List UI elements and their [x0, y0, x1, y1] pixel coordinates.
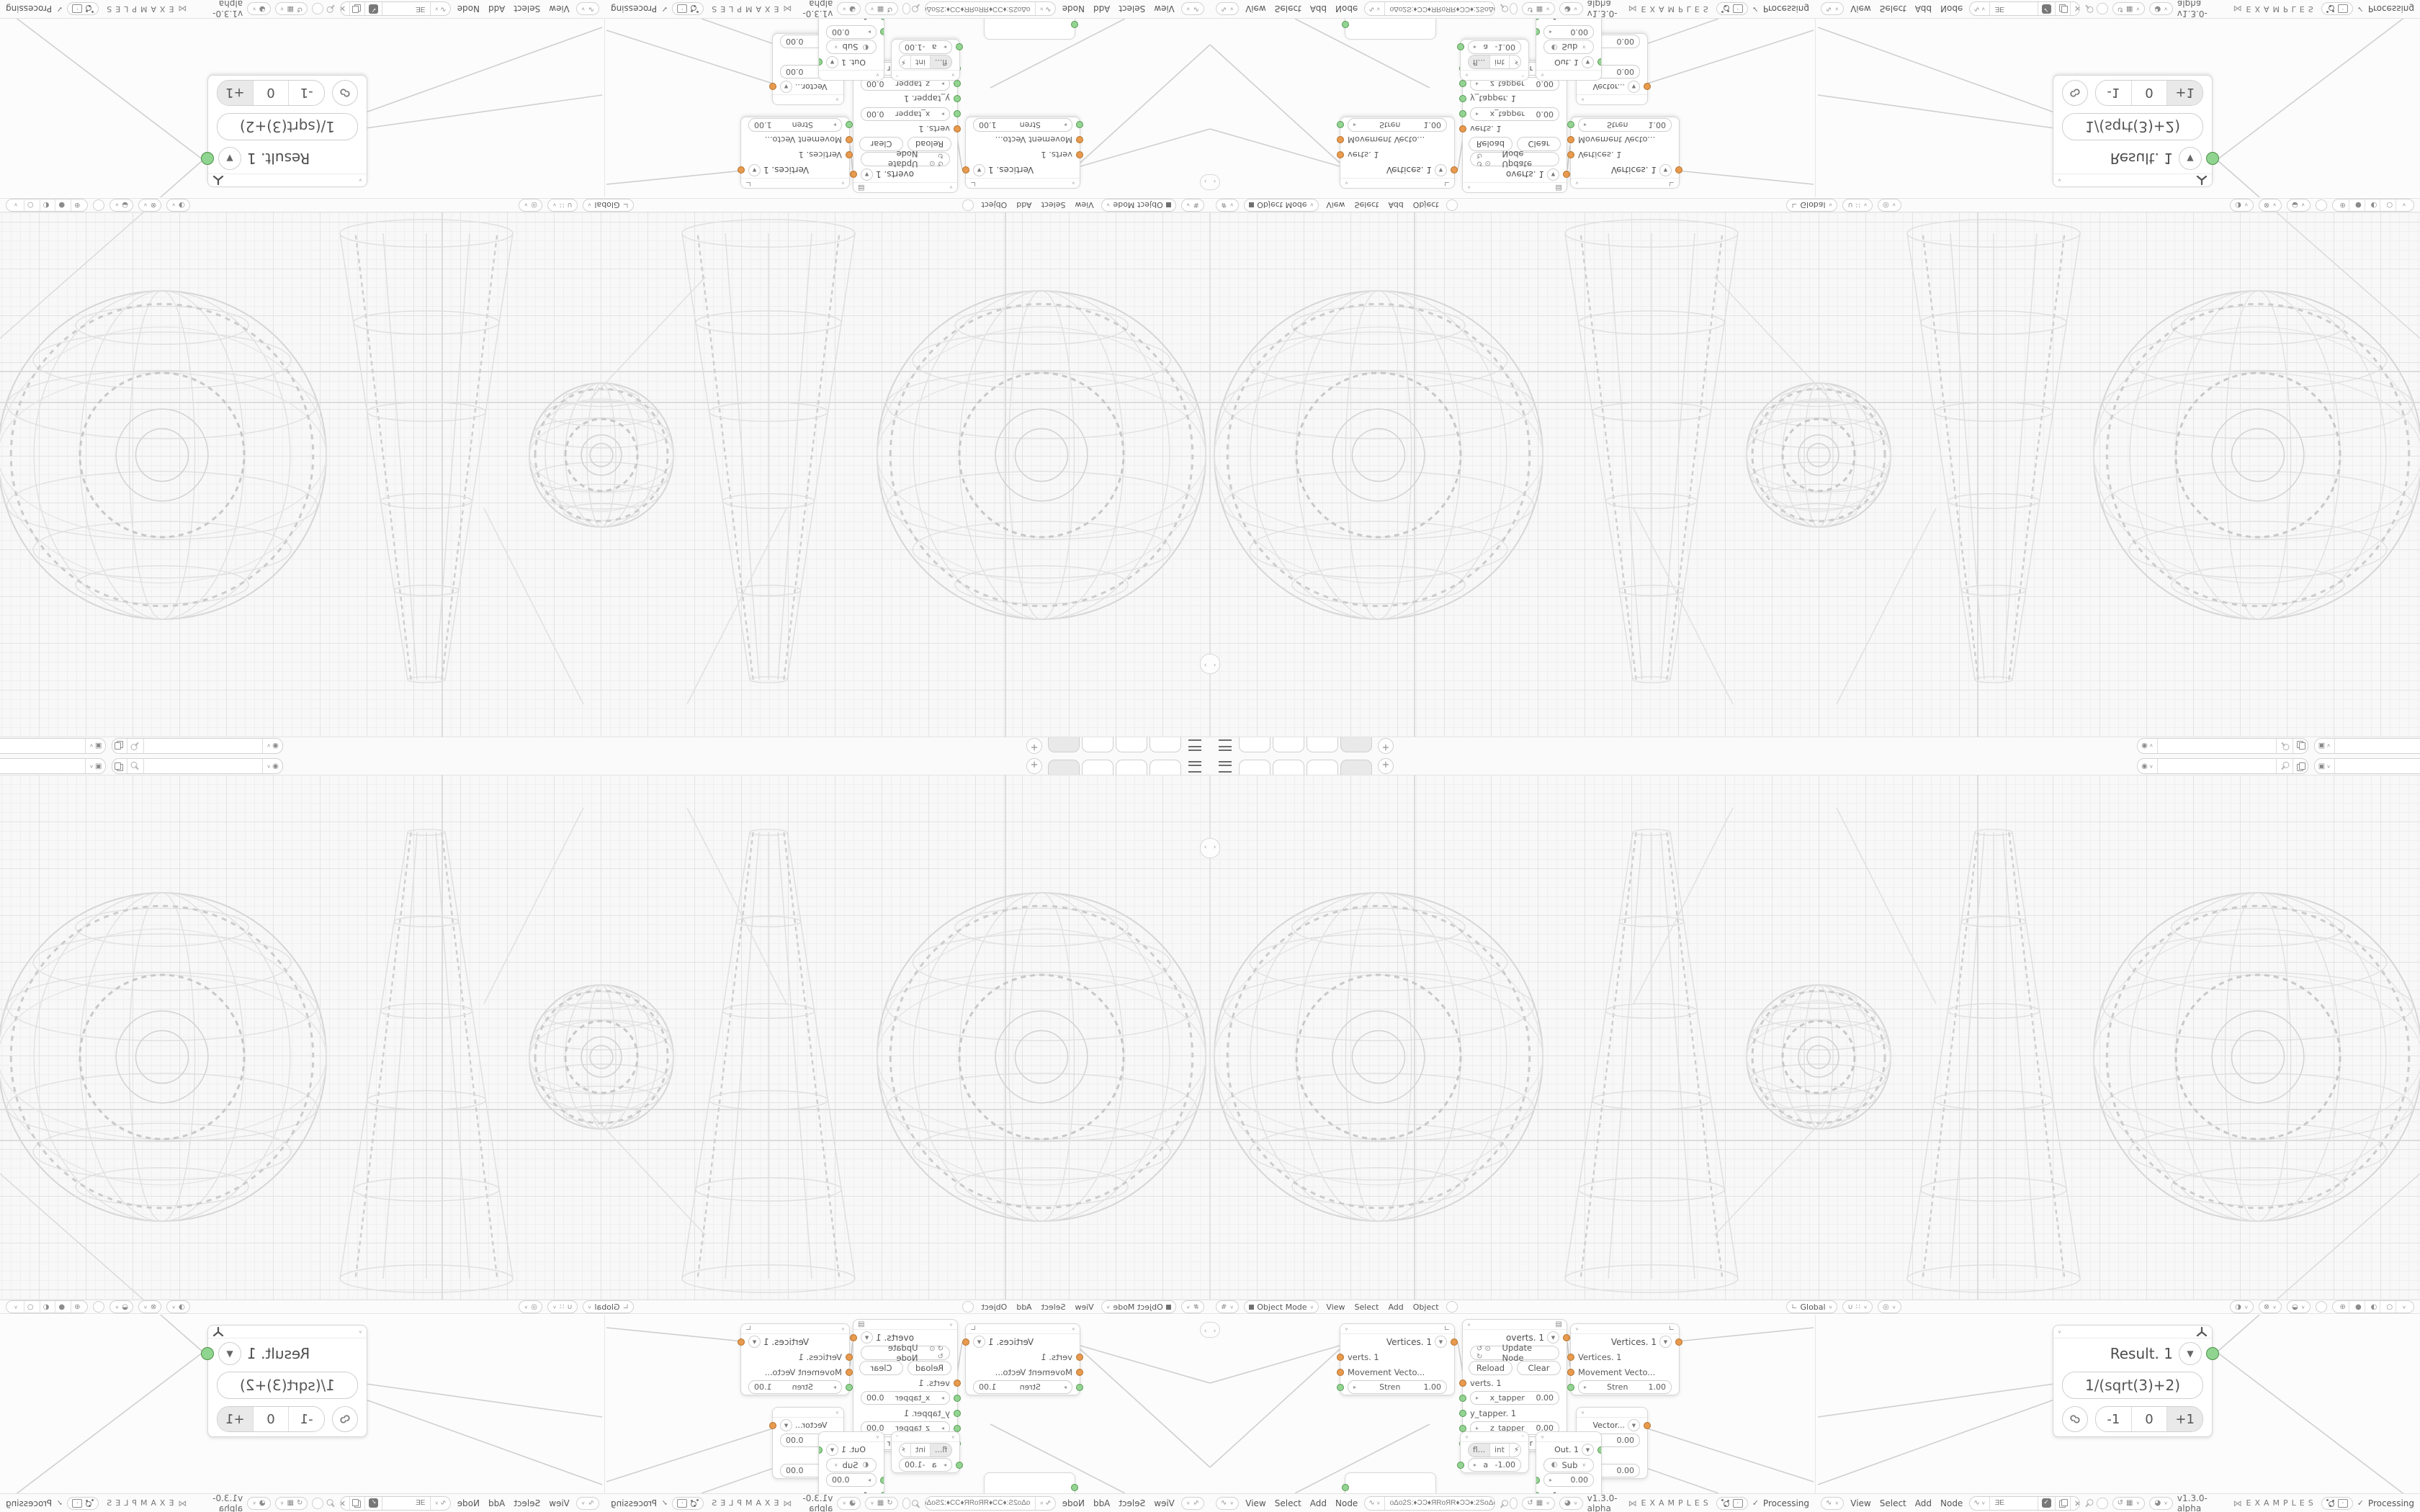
- solid-shading-icon[interactable]: ●: [2352, 199, 2365, 211]
- menu-node[interactable]: Node: [1938, 1498, 1965, 1508]
- data-name-field-1[interactable]: [2161, 739, 2272, 752]
- pin-icon[interactable]: [326, 2, 339, 15]
- expression-field[interactable]: 1/(sqrt(3)+2): [217, 113, 358, 140]
- overlay-toggle-3[interactable]: ◒∨: [2287, 199, 2311, 212]
- tree-selector[interactable]: ∿∨: [1821, 1497, 1844, 1510]
- tools-pill[interactable]: ›: [1716, 1497, 1748, 1510]
- dropdown-button[interactable]: ▼: [826, 1444, 838, 1456]
- data-selector-2[interactable]: ▣∨: [2314, 758, 2420, 774]
- menu-add[interactable]: Add: [1091, 1498, 1112, 1508]
- copy-icon[interactable]: [116, 762, 123, 770]
- snap-pill[interactable]: ↺▦∨: [275, 1497, 308, 1510]
- shading-mode-switch[interactable]: ⊕ ● ◐ ○ ∨: [2332, 1300, 2414, 1313]
- node-literal[interactable]: ∨· fl…int⚡▼ ▸a-1.00: [891, 1431, 960, 1473]
- overlay-toggle-2[interactable]: ⊗∨: [138, 199, 161, 212]
- shield-icon[interactable]: ✓: [2042, 1498, 2051, 1508]
- operation-select[interactable]: ◐Sub∨: [1543, 1458, 1594, 1472]
- menu-select[interactable]: Select: [1878, 4, 1909, 14]
- tree-selector[interactable]: ∿∨: [1181, 3, 1204, 16]
- tree-name-field[interactable]: [1994, 1498, 2034, 1509]
- toggle-circle[interactable]: [2097, 1498, 2107, 1509]
- tools-pill[interactable]: ›: [672, 3, 704, 16]
- operation-select[interactable]: ◐Sub∨: [826, 40, 877, 55]
- menu-add[interactable]: Add: [1913, 1498, 1934, 1508]
- decrement-button[interactable]: -1: [2096, 1407, 2132, 1431]
- data-name-field-2[interactable]: [2339, 760, 2420, 773]
- shading-mode-switch[interactable]: ⊕ ● ◐ ○ ∨: [6, 199, 88, 212]
- copy-icon[interactable]: [116, 742, 123, 750]
- wireframe-shading-icon[interactable]: ⊕: [71, 1301, 83, 1313]
- menu-object[interactable]: Object: [1411, 1302, 1441, 1312]
- clear-button[interactable]: Clear: [1517, 1361, 1561, 1375]
- transform-orientation[interactable]: ∟Global∨: [583, 1300, 634, 1313]
- node-vertices-a[interactable]: ∨∟ Vertices. 1▼ verts. 1 Movement Vecto.…: [965, 1323, 1080, 1395]
- menu-view[interactable]: View: [1152, 4, 1176, 14]
- menu-view[interactable]: View: [547, 1498, 571, 1508]
- input-socket[interactable]: [1567, 1384, 1574, 1391]
- shading-mode-switch[interactable]: ⊕ ● ◐ ○ ∨: [6, 1300, 88, 1313]
- close-icon[interactable]: ×: [340, 4, 346, 14]
- tab-2[interactable]: [1116, 737, 1147, 752]
- menu-node[interactable]: Node: [1060, 4, 1087, 14]
- data-selector-2[interactable]: ▣∨: [0, 738, 106, 754]
- increment-button[interactable]: +1: [218, 1407, 253, 1431]
- mode-selector[interactable]: Object Mode∨: [1101, 199, 1176, 212]
- update-node-button[interactable]: ↺ ⊙ ↻Update Node: [1470, 153, 1559, 167]
- pin-icon[interactable]: [913, 1498, 923, 1509]
- input-socket[interactable]: [1536, 29, 1540, 36]
- output-socket[interactable]: [738, 1338, 745, 1346]
- zero-button[interactable]: 0: [2132, 81, 2168, 105]
- zero-button[interactable]: 0: [253, 81, 289, 105]
- input-socket[interactable]: [956, 44, 963, 51]
- copy-icon[interactable]: [2297, 742, 2304, 750]
- zero-button[interactable]: 0: [2132, 1407, 2168, 1431]
- snap-control[interactable]: ∪∷∨: [547, 1300, 578, 1313]
- input-socket[interactable]: [1567, 137, 1574, 144]
- input-socket[interactable]: [1076, 122, 1083, 129]
- sphere-pill[interactable]: ◕∨: [247, 3, 271, 16]
- examples-label[interactable]: EXAMPLES: [103, 4, 174, 14]
- toggle-circle[interactable]: [1510, 1498, 1518, 1509]
- output-socket[interactable]: [1675, 1338, 1682, 1346]
- input-socket[interactable]: [846, 1354, 853, 1361]
- output-socket[interactable]: [962, 1338, 969, 1346]
- menu-view[interactable]: View: [1072, 201, 1095, 210]
- toggle-circle[interactable]: [93, 199, 104, 211]
- viewport-3d[interactable]: ›: [0, 212, 1210, 737]
- dropdown-button[interactable]: ▼: [218, 147, 241, 170]
- sphere-pill[interactable]: ◕∨: [2149, 3, 2173, 16]
- menu-view[interactable]: View: [547, 4, 571, 14]
- result-output-socket[interactable]: [201, 1347, 214, 1360]
- input-socket[interactable]: [1457, 44, 1464, 51]
- data-name-field-2[interactable]: [0, 739, 81, 752]
- expression-field[interactable]: 1/(sqrt(3)+2): [2062, 113, 2203, 140]
- tools-pill[interactable]: ›: [672, 1497, 704, 1510]
- clear-button[interactable]: Clear: [1517, 138, 1561, 152]
- output-socket[interactable]: [1451, 167, 1458, 174]
- tab-1[interactable]: [1239, 760, 1270, 775]
- tab-2[interactable]: [1273, 737, 1304, 752]
- menu-add[interactable]: Add: [1386, 201, 1405, 210]
- editor-type-selector[interactable]: #∨: [1216, 1300, 1239, 1313]
- menu-object[interactable]: Object: [1411, 201, 1441, 210]
- shield-icon[interactable]: ✓: [369, 4, 378, 14]
- snap-control[interactable]: ∪∷∨: [547, 199, 578, 212]
- dropdown-button[interactable]: ▼: [1435, 1336, 1447, 1348]
- update-node-button[interactable]: ↺ ⊙ ↻Update Node: [861, 153, 950, 167]
- decrement-button[interactable]: -1: [288, 81, 324, 105]
- menu-node[interactable]: Node: [1333, 1498, 1360, 1508]
- transform-orientation[interactable]: ∟Global∨: [583, 199, 634, 212]
- new-tab-button[interactable]: +: [1378, 738, 1394, 754]
- pin-icon[interactable]: [913, 4, 923, 15]
- tools-pill[interactable]: ›: [2321, 1497, 2353, 1510]
- input-socket[interactable]: [1459, 96, 1466, 103]
- dropdown-button[interactable]: ▼: [1582, 1444, 1594, 1456]
- tree-name-field[interactable]: [1389, 4, 1495, 15]
- output-socket[interactable]: [1563, 1334, 1570, 1341]
- menu-add[interactable]: Add: [486, 1498, 507, 1508]
- dropdown-button[interactable]: ▼: [1547, 1331, 1559, 1344]
- tab-4-active[interactable]: [1048, 737, 1080, 752]
- input-socket[interactable]: [1567, 122, 1574, 129]
- menu-object[interactable]: Object: [979, 201, 1009, 210]
- input-socket[interactable]: [846, 1369, 853, 1376]
- pin-icon[interactable]: [2082, 1496, 2095, 1509]
- transform-orientation[interactable]: ∟Global∨: [1786, 1300, 1837, 1313]
- type-switch[interactable]: fl…int⚡▼: [1468, 55, 1521, 70]
- node-vertices-a[interactable]: ∨∟ Vertices. 1▼ verts. 1 Movement Vecto.…: [965, 117, 1080, 189]
- new-tab-button[interactable]: +: [1026, 738, 1042, 754]
- input-socket[interactable]: [1342, 1484, 1349, 1491]
- output-socket[interactable]: [818, 1446, 823, 1454]
- sphere-pill[interactable]: ◕∨: [247, 1497, 271, 1510]
- type-switch[interactable]: fl…int⚡▼: [1468, 1443, 1521, 1457]
- tree-selector[interactable]: ∿∨: [1821, 3, 1844, 16]
- node-editor-band[interactable]: › ∨∟ Vertices. 1▼ verts. 1 Movement Vect…: [0, 0, 1210, 197]
- output-socket[interactable]: [818, 59, 823, 66]
- menu-node[interactable]: Node: [1333, 4, 1360, 14]
- output-socket[interactable]: [769, 1422, 776, 1429]
- input-socket[interactable]: [1337, 122, 1344, 129]
- dropdown-button[interactable]: ▼: [1659, 1336, 1672, 1348]
- input-socket[interactable]: [1567, 152, 1574, 159]
- material-shading-icon[interactable]: ◐: [2368, 1301, 2381, 1313]
- output-socket[interactable]: [1644, 1422, 1651, 1429]
- input-socket[interactable]: [1076, 152, 1083, 159]
- menu-add[interactable]: Add: [1091, 4, 1112, 14]
- sphere-pill[interactable]: ◕∨: [1559, 1497, 1583, 1510]
- tree-name-field[interactable]: [925, 1498, 1031, 1509]
- solid-shading-icon[interactable]: ●: [2352, 1301, 2365, 1313]
- decrement-button[interactable]: -1: [288, 1407, 324, 1431]
- input-socket[interactable]: [954, 81, 961, 88]
- tab-3[interactable]: [1307, 760, 1338, 775]
- tools-pill[interactable]: ›: [1716, 3, 1748, 16]
- dropdown-button[interactable]: ▼: [780, 81, 792, 93]
- menu-node[interactable]: Node: [1060, 1498, 1087, 1508]
- data-name-field-2[interactable]: [0, 760, 81, 773]
- menu-view[interactable]: View: [1243, 1498, 1268, 1508]
- output-socket[interactable]: [769, 84, 776, 91]
- rendered-shading-icon[interactable]: ○: [2383, 1301, 2396, 1313]
- menu-node[interactable]: Node: [1938, 4, 1965, 14]
- toggle-circle[interactable]: [962, 199, 974, 211]
- node-editor-band[interactable]: › ∨∟ Vertices. 1▼ verts. 1 Movement Vect…: [1210, 0, 2420, 197]
- input-socket[interactable]: [1459, 111, 1466, 118]
- node-literal[interactable]: ∨· fl…int⚡▼ ▸a-1.00: [891, 39, 960, 81]
- toggle-circle[interactable]: [1446, 199, 1458, 211]
- overlay-toggle-1[interactable]: ◑∨: [2230, 1300, 2254, 1313]
- dropdown-button[interactable]: ▼: [1547, 168, 1559, 181]
- input-socket[interactable]: [1071, 21, 1078, 28]
- tab-4-active[interactable]: [1340, 737, 1372, 752]
- output-socket[interactable]: [1597, 1446, 1602, 1454]
- node-vertices-b[interactable]: ∨∟ Vertices. 1▼ Vertices. 1 Movement Vec…: [1570, 117, 1680, 189]
- overlay-toggle-2[interactable]: ⊗∨: [138, 1300, 161, 1313]
- dropdown-button[interactable]: ▼: [1659, 164, 1672, 176]
- pin-icon[interactable]: [129, 739, 142, 752]
- input-socket[interactable]: [956, 1462, 963, 1469]
- snap-pill[interactable]: ↺▦∨: [275, 3, 308, 16]
- tab-1[interactable]: [1149, 737, 1181, 752]
- node-vertices-b[interactable]: ∨∟ Vertices. 1▼ Vertices. 1 Movement Vec…: [740, 117, 850, 189]
- reload-button[interactable]: Reload: [907, 138, 951, 152]
- tree-selector[interactable]: ∿∨: [1181, 1497, 1204, 1510]
- tab-3[interactable]: [1082, 760, 1113, 775]
- menu-node[interactable]: Node: [455, 1498, 482, 1508]
- node-result[interactable]: ∨ Result. 1 ▼ 1/(sqrt(3)+2) -1: [2053, 75, 2213, 187]
- data-selector-2[interactable]: ▣∨: [0, 758, 106, 774]
- menu-icon[interactable]: [1188, 761, 1201, 773]
- reload-button[interactable]: Reload: [1469, 1361, 1512, 1375]
- menu-select[interactable]: Select: [511, 4, 542, 14]
- node-result[interactable]: ∨ Result. 1 ▼ 1/(sqrt(3)+2) -1: [207, 75, 367, 187]
- data-name-field-1[interactable]: [2161, 760, 2272, 773]
- tree-selector[interactable]: ∿∨: [576, 1497, 599, 1510]
- material-shading-icon[interactable]: ◐: [40, 1301, 53, 1313]
- examples-label[interactable]: EXAMPLES: [103, 1498, 174, 1508]
- data-selector-1[interactable]: ◉∨: [2137, 738, 2308, 754]
- tree-name-field[interactable]: [386, 1498, 426, 1509]
- input-socket[interactable]: [954, 1380, 961, 1387]
- data-selector-1[interactable]: ◉∨: [112, 758, 283, 774]
- proportional-edit[interactable]: ◎∨: [1878, 199, 1901, 212]
- editor-type-selector[interactable]: #∨: [1216, 199, 1239, 212]
- menu-select[interactable]: Select: [1353, 1302, 1381, 1312]
- tree-name-field[interactable]: [1389, 1498, 1495, 1509]
- clear-button[interactable]: Clear: [859, 138, 903, 152]
- menu-object[interactable]: Object: [979, 1302, 1009, 1312]
- input-socket[interactable]: [1342, 21, 1349, 28]
- increment-button[interactable]: +1: [2167, 81, 2202, 105]
- menu-icon[interactable]: [1219, 761, 1232, 773]
- material-shading-icon[interactable]: ◐: [40, 199, 53, 211]
- reload-button[interactable]: Reload: [1469, 138, 1512, 152]
- partial-node[interactable]: [984, 1472, 1075, 1495]
- examples-label[interactable]: EXAMPLES: [708, 1498, 779, 1508]
- input-socket[interactable]: [1459, 1425, 1466, 1432]
- toggle-circle[interactable]: [1446, 1301, 1458, 1313]
- tree-selector[interactable]: ∿∨: [1216, 3, 1239, 16]
- reload-button[interactable]: Reload: [907, 1361, 951, 1375]
- dropdown-button[interactable]: ▼: [748, 164, 761, 176]
- tools-pill[interactable]: ›: [2321, 3, 2353, 16]
- sidebar-pull-tab[interactable]: ›: [1200, 174, 1210, 190]
- node-vertices-b[interactable]: ∨∟ Vertices. 1▼ Vertices. 1 Movement Vec…: [740, 1323, 850, 1395]
- input-socket[interactable]: [1459, 126, 1466, 133]
- zero-button[interactable]: 0: [253, 1407, 289, 1431]
- overlay-toggle-3[interactable]: ◒∨: [109, 199, 133, 212]
- link-button[interactable]: [332, 1406, 358, 1432]
- examples-label[interactable]: EXAMPLES: [708, 4, 779, 14]
- menu-view[interactable]: View: [1324, 201, 1347, 210]
- input-socket[interactable]: [1457, 1462, 1464, 1469]
- toggle-circle[interactable]: [962, 1301, 974, 1313]
- menu-select[interactable]: Select: [1116, 4, 1147, 14]
- tab-2[interactable]: [1273, 760, 1304, 775]
- new-tab-button[interactable]: +: [1378, 758, 1394, 774]
- wireframe-shading-icon[interactable]: ⊕: [71, 199, 83, 211]
- rendered-shading-icon[interactable]: ○: [2383, 199, 2396, 211]
- menu-select[interactable]: Select: [1273, 1498, 1304, 1508]
- link-button[interactable]: [2062, 80, 2088, 106]
- menu-select[interactable]: Select: [511, 1498, 542, 1508]
- clear-button[interactable]: Clear: [859, 1361, 903, 1375]
- snap-control[interactable]: ∪∷∨: [1842, 1300, 1873, 1313]
- node-vertices-a[interactable]: ∨∟ Vertices. 1▼ verts. 1 Movement Vecto.…: [1340, 1323, 1455, 1395]
- examples-label[interactable]: EXAMPLES: [1641, 4, 1712, 14]
- shield-icon[interactable]: ✓: [2042, 4, 2051, 14]
- input-socket[interactable]: [1459, 1410, 1466, 1417]
- input-socket[interactable]: [1567, 1354, 1574, 1361]
- copy-icon[interactable]: [2059, 5, 2066, 13]
- expression-field[interactable]: 1/(sqrt(3)+2): [2062, 1372, 2203, 1399]
- input-socket[interactable]: [846, 152, 853, 159]
- dropdown-button[interactable]: ▼: [861, 168, 873, 181]
- sidebar-pull-tab[interactable]: ›: [1200, 1322, 1210, 1338]
- menu-add[interactable]: Add: [1308, 1498, 1329, 1508]
- input-socket[interactable]: [1337, 1384, 1344, 1391]
- input-socket[interactable]: [1076, 1384, 1083, 1391]
- copy-icon[interactable]: [2297, 762, 2304, 770]
- solid-shading-icon[interactable]: ●: [55, 1301, 68, 1313]
- input-socket[interactable]: [954, 96, 961, 103]
- tools-pill[interactable]: ›: [67, 3, 99, 16]
- output-socket[interactable]: [850, 171, 857, 179]
- input-socket[interactable]: [954, 1410, 961, 1417]
- tab-3[interactable]: [1082, 737, 1113, 752]
- sphere-pill[interactable]: ◕∨: [837, 1497, 861, 1510]
- menu-view[interactable]: View: [1243, 4, 1268, 14]
- input-socket[interactable]: [1076, 137, 1083, 144]
- overlay-toggle-1[interactable]: ◑∨: [166, 199, 190, 212]
- examples-label[interactable]: EXAMPLES: [2246, 1498, 2317, 1508]
- menu-view[interactable]: View: [1848, 4, 1873, 14]
- dropdown-button[interactable]: ▼: [2179, 147, 2202, 170]
- dropdown-button[interactable]: ▼: [826, 56, 838, 68]
- sphere-pill[interactable]: ◕∨: [2149, 1497, 2173, 1510]
- sphere-pill[interactable]: ◕∨: [1559, 3, 1583, 16]
- node-editor-band[interactable]: › ∨∟ Vertices. 1▼ verts. 1 Movement Vect…: [1210, 1315, 2420, 1512]
- update-node-button[interactable]: ↺ ⊙ ↻Update Node: [1470, 1346, 1559, 1360]
- pin-icon[interactable]: [2278, 760, 2291, 773]
- overlay-toggle-2[interactable]: ⊗∨: [2259, 1300, 2282, 1313]
- pin-icon[interactable]: [2278, 739, 2291, 752]
- input-socket[interactable]: [1459, 1380, 1466, 1387]
- overlay-toggle-2[interactable]: ⊗∨: [2259, 199, 2282, 212]
- toggle-circle[interactable]: [93, 1301, 104, 1313]
- input-socket[interactable]: [954, 1395, 961, 1402]
- overlay-toggle-3[interactable]: ◒∨: [109, 1300, 133, 1313]
- input-socket[interactable]: [1459, 81, 1466, 88]
- input-socket[interactable]: [846, 1384, 853, 1391]
- link-button[interactable]: [2062, 1406, 2088, 1432]
- dropdown-button[interactable]: ▼: [973, 164, 985, 176]
- node-literal[interactable]: ∨· fl…int⚡▼ ▸a-1.00: [1460, 39, 1529, 81]
- output-socket[interactable]: [850, 1334, 857, 1341]
- toggle-circle[interactable]: [1510, 4, 1518, 15]
- snap-pill[interactable]: ↺▦∨: [1522, 3, 1555, 16]
- mode-selector[interactable]: Object Mode∨: [1244, 199, 1319, 212]
- menu-select[interactable]: Select: [1039, 201, 1068, 210]
- result-output-socket[interactable]: [201, 152, 214, 165]
- input-socket[interactable]: [1076, 1369, 1083, 1376]
- input-socket[interactable]: [1337, 1369, 1344, 1376]
- tab-3[interactable]: [1307, 737, 1338, 752]
- input-socket[interactable]: [1567, 1369, 1574, 1376]
- wireframe-shading-icon[interactable]: ⊕: [2337, 1301, 2349, 1313]
- input-socket[interactable]: [846, 122, 853, 129]
- toggle-circle[interactable]: [902, 1498, 910, 1509]
- viewport-3d[interactable]: ›: [1210, 212, 2420, 737]
- toggle-circle[interactable]: [2316, 1301, 2327, 1313]
- menu-add[interactable]: Add: [1014, 1302, 1034, 1312]
- rendered-shading-icon[interactable]: ○: [24, 199, 37, 211]
- transform-orientation[interactable]: ∟Global∨: [1786, 199, 1837, 212]
- input-socket[interactable]: [880, 29, 884, 36]
- input-socket[interactable]: [1536, 1477, 1540, 1484]
- material-shading-icon[interactable]: ◐: [2368, 199, 2381, 211]
- new-tab-button[interactable]: +: [1026, 758, 1042, 774]
- menu-select[interactable]: Select: [1878, 1498, 1909, 1508]
- dropdown-button[interactable]: ▼: [973, 1336, 985, 1348]
- snap-pill[interactable]: ↺▦∨: [865, 1497, 898, 1510]
- menu-icon[interactable]: [1188, 739, 1201, 751]
- output-socket[interactable]: [1675, 167, 1682, 174]
- type-switch[interactable]: fl…int⚡▼: [899, 55, 952, 70]
- menu-view[interactable]: View: [1848, 1498, 1873, 1508]
- pin-icon[interactable]: [129, 760, 142, 773]
- editor-type-selector[interactable]: #∨: [1181, 1300, 1204, 1313]
- node-result[interactable]: ∨ Result. 1 ▼ 1/(sqrt(3)+2) -1: [2053, 1325, 2213, 1437]
- toggle-circle[interactable]: [2097, 4, 2107, 15]
- menu-view[interactable]: View: [1152, 1498, 1176, 1508]
- menu-select[interactable]: Select: [1353, 201, 1381, 210]
- tab-1[interactable]: [1149, 760, 1181, 775]
- dropdown-button[interactable]: ▼: [1582, 56, 1594, 68]
- overlay-toggle-3[interactable]: ◒∨: [2287, 1300, 2311, 1313]
- node-result[interactable]: ∨ Result. 1 ▼ 1/(sqrt(3)+2) -1: [207, 1325, 367, 1437]
- copy-icon[interactable]: [354, 1499, 361, 1507]
- output-socket[interactable]: [962, 167, 969, 174]
- snap-pill[interactable]: ↺▦∨: [1522, 1497, 1555, 1510]
- snap-control[interactable]: ∪∷∨: [1842, 199, 1873, 212]
- input-socket[interactable]: [954, 1425, 961, 1432]
- copy-icon[interactable]: [2059, 1499, 2066, 1507]
